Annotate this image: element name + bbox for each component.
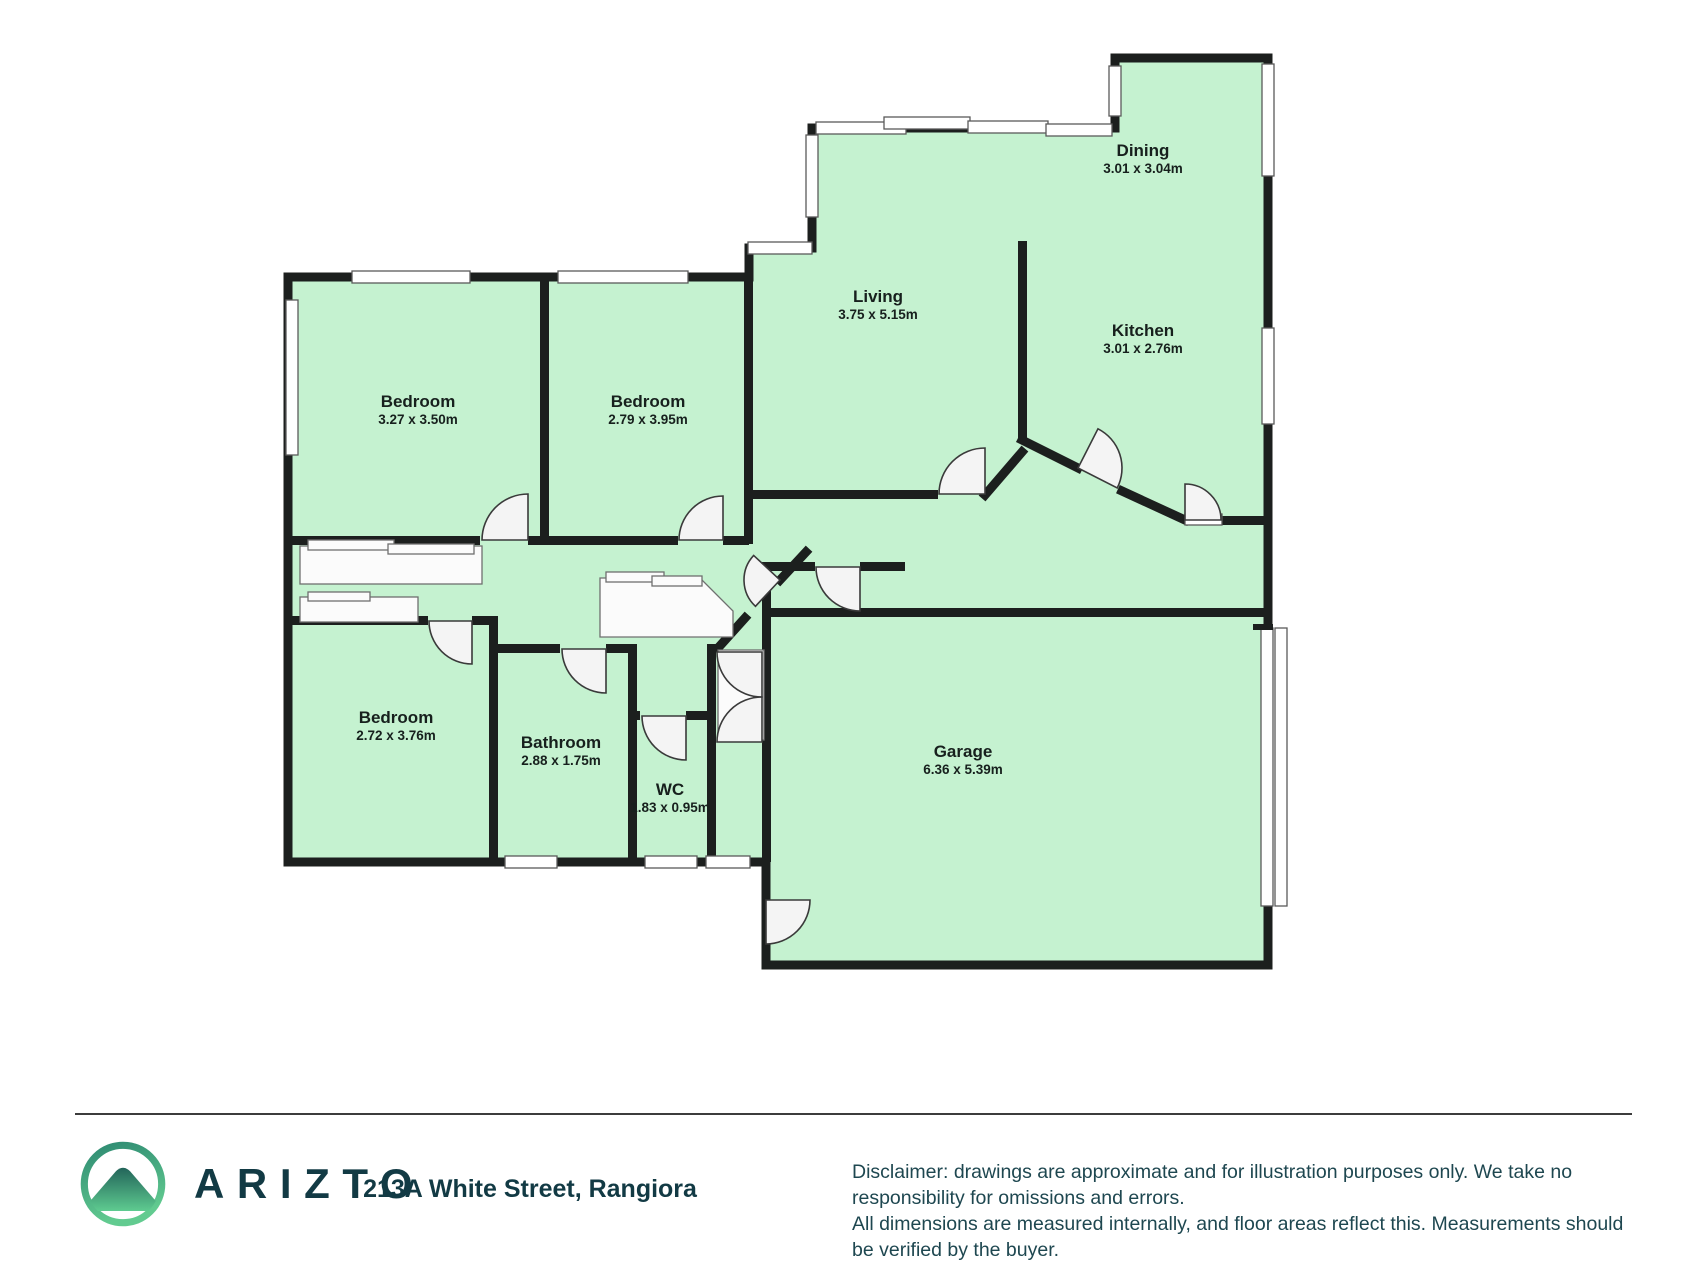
disclaimer: Disclaimer: drawings are approximate and… <box>852 1159 1642 1264</box>
label-bathroom-dims: 2.88 x 1.75m <box>521 753 601 768</box>
label-kitchen-dims: 3.01 x 2.76m <box>1103 341 1183 356</box>
footer: ARIZTO 213A White Street, Rangiora Discl… <box>0 1113 1707 1280</box>
label-bedroom3-name: Bedroom <box>359 708 434 727</box>
property-address: 213A White Street, Rangiora <box>330 1175 730 1204</box>
label-dining-dims: 3.01 x 3.04m <box>1103 161 1183 176</box>
label-bedroom1-dims: 3.27 x 3.50m <box>378 412 458 427</box>
arizto-logo-icon <box>78 1139 168 1229</box>
label-bedroom2-dims: 2.79 x 3.95m <box>608 412 688 427</box>
floorplan: .wall{fill:#1c1f1e;} .wline{stroke:#1c1f… <box>0 0 1707 1113</box>
label-garage-name: Garage <box>934 742 993 761</box>
label-bedroom1-name: Bedroom <box>381 392 456 411</box>
label-wc-name: WC <box>656 780 684 799</box>
label-bathroom-name: Bathroom <box>521 733 601 752</box>
label-living-name: Living <box>853 287 903 306</box>
label-wc-dims: 1.83 x 0.95m <box>630 800 710 815</box>
disclaimer-line-2: All dimensions are measured internally, … <box>852 1211 1642 1263</box>
disclaimer-line-1: Disclaimer: drawings are approximate and… <box>852 1159 1642 1211</box>
label-garage-dims: 6.36 x 5.39m <box>923 762 1003 777</box>
label-bedroom2-name: Bedroom <box>611 392 686 411</box>
footer-divider <box>75 1113 1632 1115</box>
floor-outline <box>288 58 1268 965</box>
label-living-dims: 3.75 x 5.15m <box>838 307 918 322</box>
label-kitchen-name: Kitchen <box>1112 321 1174 340</box>
label-dining-name: Dining <box>1117 141 1170 160</box>
label-bedroom3-dims: 2.72 x 3.76m <box>356 728 436 743</box>
